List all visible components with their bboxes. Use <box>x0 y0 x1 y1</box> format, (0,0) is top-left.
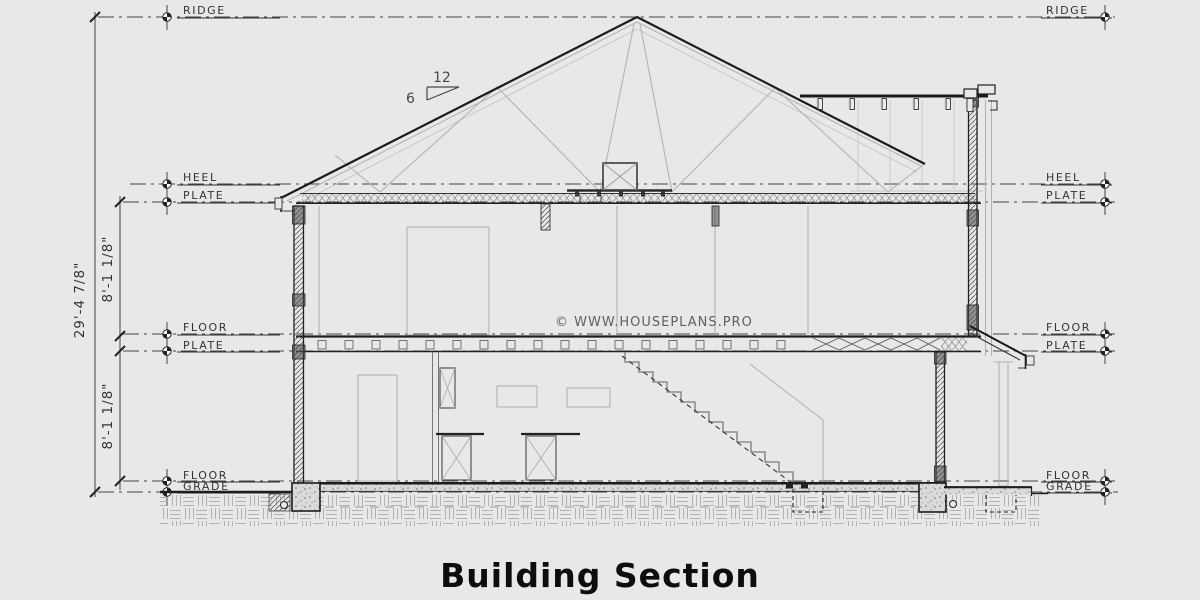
porch-post <box>999 362 1008 486</box>
slope-triangle-icon <box>427 87 459 100</box>
upper-floor-height-dimension: 8'-1 1/8" <box>100 236 116 303</box>
datum-marker-icon <box>1101 330 1109 338</box>
datum-marker-icon <box>1101 198 1109 206</box>
stair-railing-beyond <box>750 364 823 481</box>
upper-floor-assembly <box>296 337 981 352</box>
floor-joists <box>318 341 785 350</box>
stair-stringer-hidden <box>622 356 797 487</box>
left-footing <box>292 483 320 511</box>
slope-indicator: 12 6 <box>406 70 459 107</box>
dimension-texts: 29'-4 7/8" 8'-1 1/8" 8'-1 1/8" <box>72 236 116 450</box>
cabinet-beyond-2 <box>567 388 610 407</box>
datum-marker-icon <box>1101 477 1109 485</box>
ceiling-insulation <box>302 194 975 203</box>
slope-run: 12 <box>433 70 451 86</box>
gutter-right-upper <box>988 101 997 110</box>
plate-label-left-main: PLATE <box>183 339 224 352</box>
datum-marker-icon <box>163 347 171 355</box>
interior-wall-main-floor <box>433 352 439 483</box>
plate-label-right-main: PLATE <box>1046 339 1087 352</box>
datum-marker-icon <box>1101 180 1109 188</box>
datum-marker-icon <box>163 198 171 206</box>
floor-truss-webs <box>813 338 940 350</box>
heel-label-right: HEEL <box>1046 171 1081 184</box>
porch-roof-bottom <box>970 333 1020 360</box>
gutter-left <box>275 198 282 209</box>
datum-marker-icon <box>1101 347 1109 355</box>
door-opening-beyond-upper <box>407 227 489 335</box>
stairs <box>622 352 806 487</box>
drain-pipe-left <box>281 502 288 509</box>
drain-pipe-right <box>950 501 957 508</box>
overall-height-dimension: 29'-4 7/8" <box>72 262 88 339</box>
building-section-drawing: RIDGE RIDGE HEEL HEEL PLATE PLATE FLOOR … <box>0 0 1200 556</box>
level-lines <box>98 17 1118 492</box>
floor-label-left: FLOOR <box>183 321 228 334</box>
parapet-cap-2 <box>978 85 995 94</box>
stair-steps <box>625 352 806 482</box>
watermark: © WWW.HOUSEPLANS.PRO <box>555 315 753 330</box>
interior-wall-header <box>712 206 719 226</box>
floor-insulation <box>941 338 967 352</box>
ridge-label-left: RIDGE <box>183 4 226 17</box>
grade-label-right: GRADE <box>1046 480 1093 493</box>
floor-label-right: FLOOR <box>1046 321 1091 334</box>
right-lower-wall <box>936 352 945 483</box>
datum-marker-icon <box>163 330 171 338</box>
porch-gutter <box>1027 356 1035 365</box>
slab-concrete <box>318 485 940 492</box>
datum-marker-icon <box>1101 13 1109 21</box>
main-floor-height-dimension: 8'-1 1/8" <box>100 383 116 450</box>
cabinet-beyond <box>497 386 537 407</box>
door-opening-beyond-main <box>358 375 397 481</box>
datum-marker-icon <box>163 180 171 188</box>
plate-label-left: PLATE <box>183 189 224 202</box>
slope-rise: 6 <box>406 91 415 107</box>
attic-wall-stub <box>541 204 550 230</box>
datum-marker-icon <box>163 477 171 485</box>
parapet-cap <box>964 89 977 98</box>
plate-label-right: PLATE <box>1046 189 1087 202</box>
ridge-label-right: RIDGE <box>1046 4 1089 17</box>
cabinets <box>436 368 580 480</box>
datum-marker-icon <box>1101 488 1109 496</box>
left-exterior-wall <box>294 206 304 483</box>
heel-label-left: HEEL <box>183 171 218 184</box>
datum-markers <box>163 13 1109 496</box>
wall-beyond <box>986 100 992 356</box>
drawing-title: Building Section <box>0 556 1200 595</box>
elements-beyond <box>287 22 1013 486</box>
porch-slab-concrete <box>944 489 1032 495</box>
deck-joist-stubs <box>818 99 973 112</box>
right-footing <box>919 483 946 512</box>
datum-marker-icon <box>163 13 171 21</box>
ceiling-assembly <box>296 194 981 204</box>
walls <box>293 97 979 483</box>
